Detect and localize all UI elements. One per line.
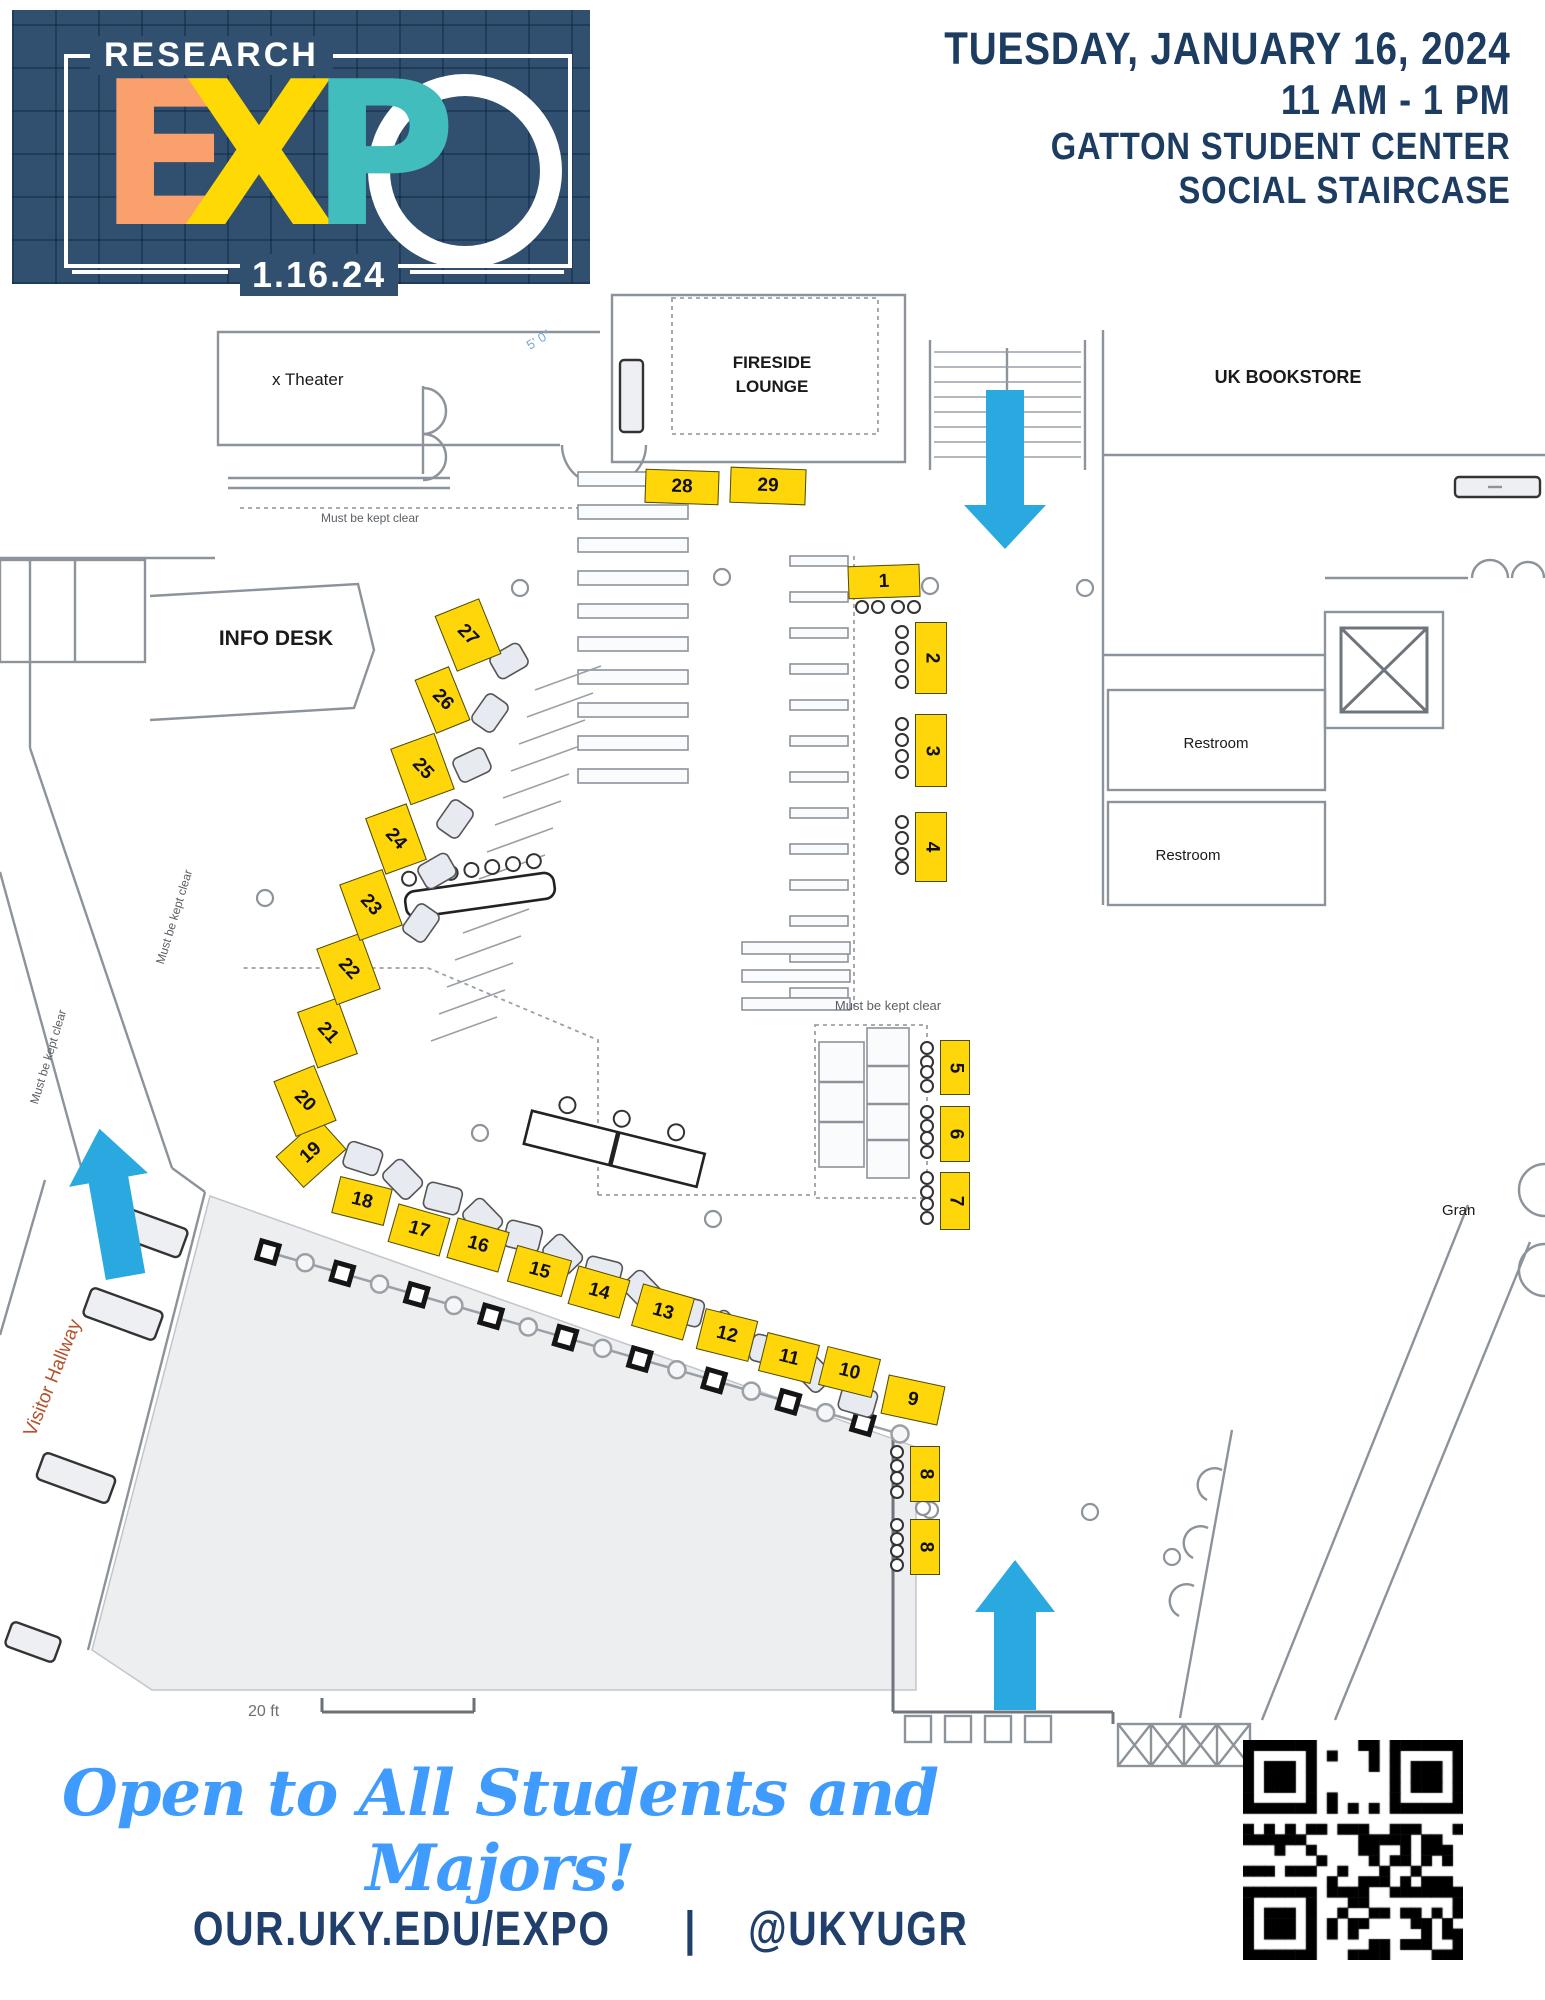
bookstore-label: UK BOOKSTORE (1215, 367, 1362, 387)
grand-label: Gran (1442, 1202, 1475, 1219)
fireside-lounge-label-1: FIRESIDE (733, 353, 811, 372)
booth-marker-2: 2 (915, 622, 947, 694)
lower-floor-area (92, 1196, 916, 1690)
social-handle: @UKYUGR (748, 1902, 968, 1957)
staircase-side-flight (742, 556, 850, 1010)
keep-clear-label-2: Must be kept clear (153, 868, 195, 966)
expo-flyer: E X P RESEARCH 1.16.24 TUESDAY, JANUARY … (0, 0, 1545, 2000)
logo-letter-p: P (310, 56, 457, 256)
visitor-hallway-label: Visitor Hallway (20, 1316, 86, 1440)
shelving-units (819, 1028, 909, 1178)
logo-research-label: RESEARCH (90, 36, 333, 75)
scale-label: 20 ft (248, 1703, 280, 1720)
footer-links: OUR.UKY.EDU/EXPO|@UKYUGR (0, 1902, 1140, 1957)
flow-arrow-down (964, 390, 1046, 549)
info-desk-label: INFO DESK (219, 627, 333, 650)
tagline-text: Open to All Students and Majors! (55, 1756, 945, 1906)
footer-separator: | (684, 1902, 697, 1957)
booth-marker-3: 3 (915, 714, 947, 787)
booth-marker-5: 5 (940, 1040, 970, 1095)
floor-plan: x Theater Must be kept clear FIRESIDE LO… (0, 0, 1545, 2000)
long-table (524, 1089, 710, 1186)
restroom-label-1: Restroom (1183, 735, 1248, 752)
theater-label: x Theater (272, 370, 344, 389)
booth-marker-4: 4 (915, 812, 947, 882)
expo-url: OUR.UKY.EDU/EXPO (193, 1902, 611, 1957)
keep-clear-label-1: Must be kept clear (321, 511, 419, 525)
flow-arrow-up-bottom (975, 1560, 1055, 1710)
keep-clear-label-3: Must be kept clear (27, 1008, 69, 1106)
qr-code (1243, 1740, 1463, 1960)
booth-marker-6: 6 (940, 1106, 970, 1162)
restroom-label-2: Restroom (1155, 847, 1220, 864)
booth-marker-8b: 8 (910, 1519, 940, 1575)
booth-marker-28: 28 (644, 469, 719, 506)
booth-marker-1: 1 (847, 564, 920, 599)
booth-marker-29: 29 (729, 467, 806, 506)
scale-bar (322, 1698, 474, 1712)
booth-marker-7: 7 (940, 1172, 970, 1230)
keep-clear-label-4: Must be kept clear (835, 998, 942, 1013)
dimension-label: 5' 0" (524, 326, 554, 352)
booth-marker-8a: 8 (910, 1446, 940, 1502)
fireside-lounge-label-2: LOUNGE (736, 377, 809, 396)
staircase-main-flight (578, 472, 688, 783)
logo-date: 1.16.24 (240, 254, 398, 296)
